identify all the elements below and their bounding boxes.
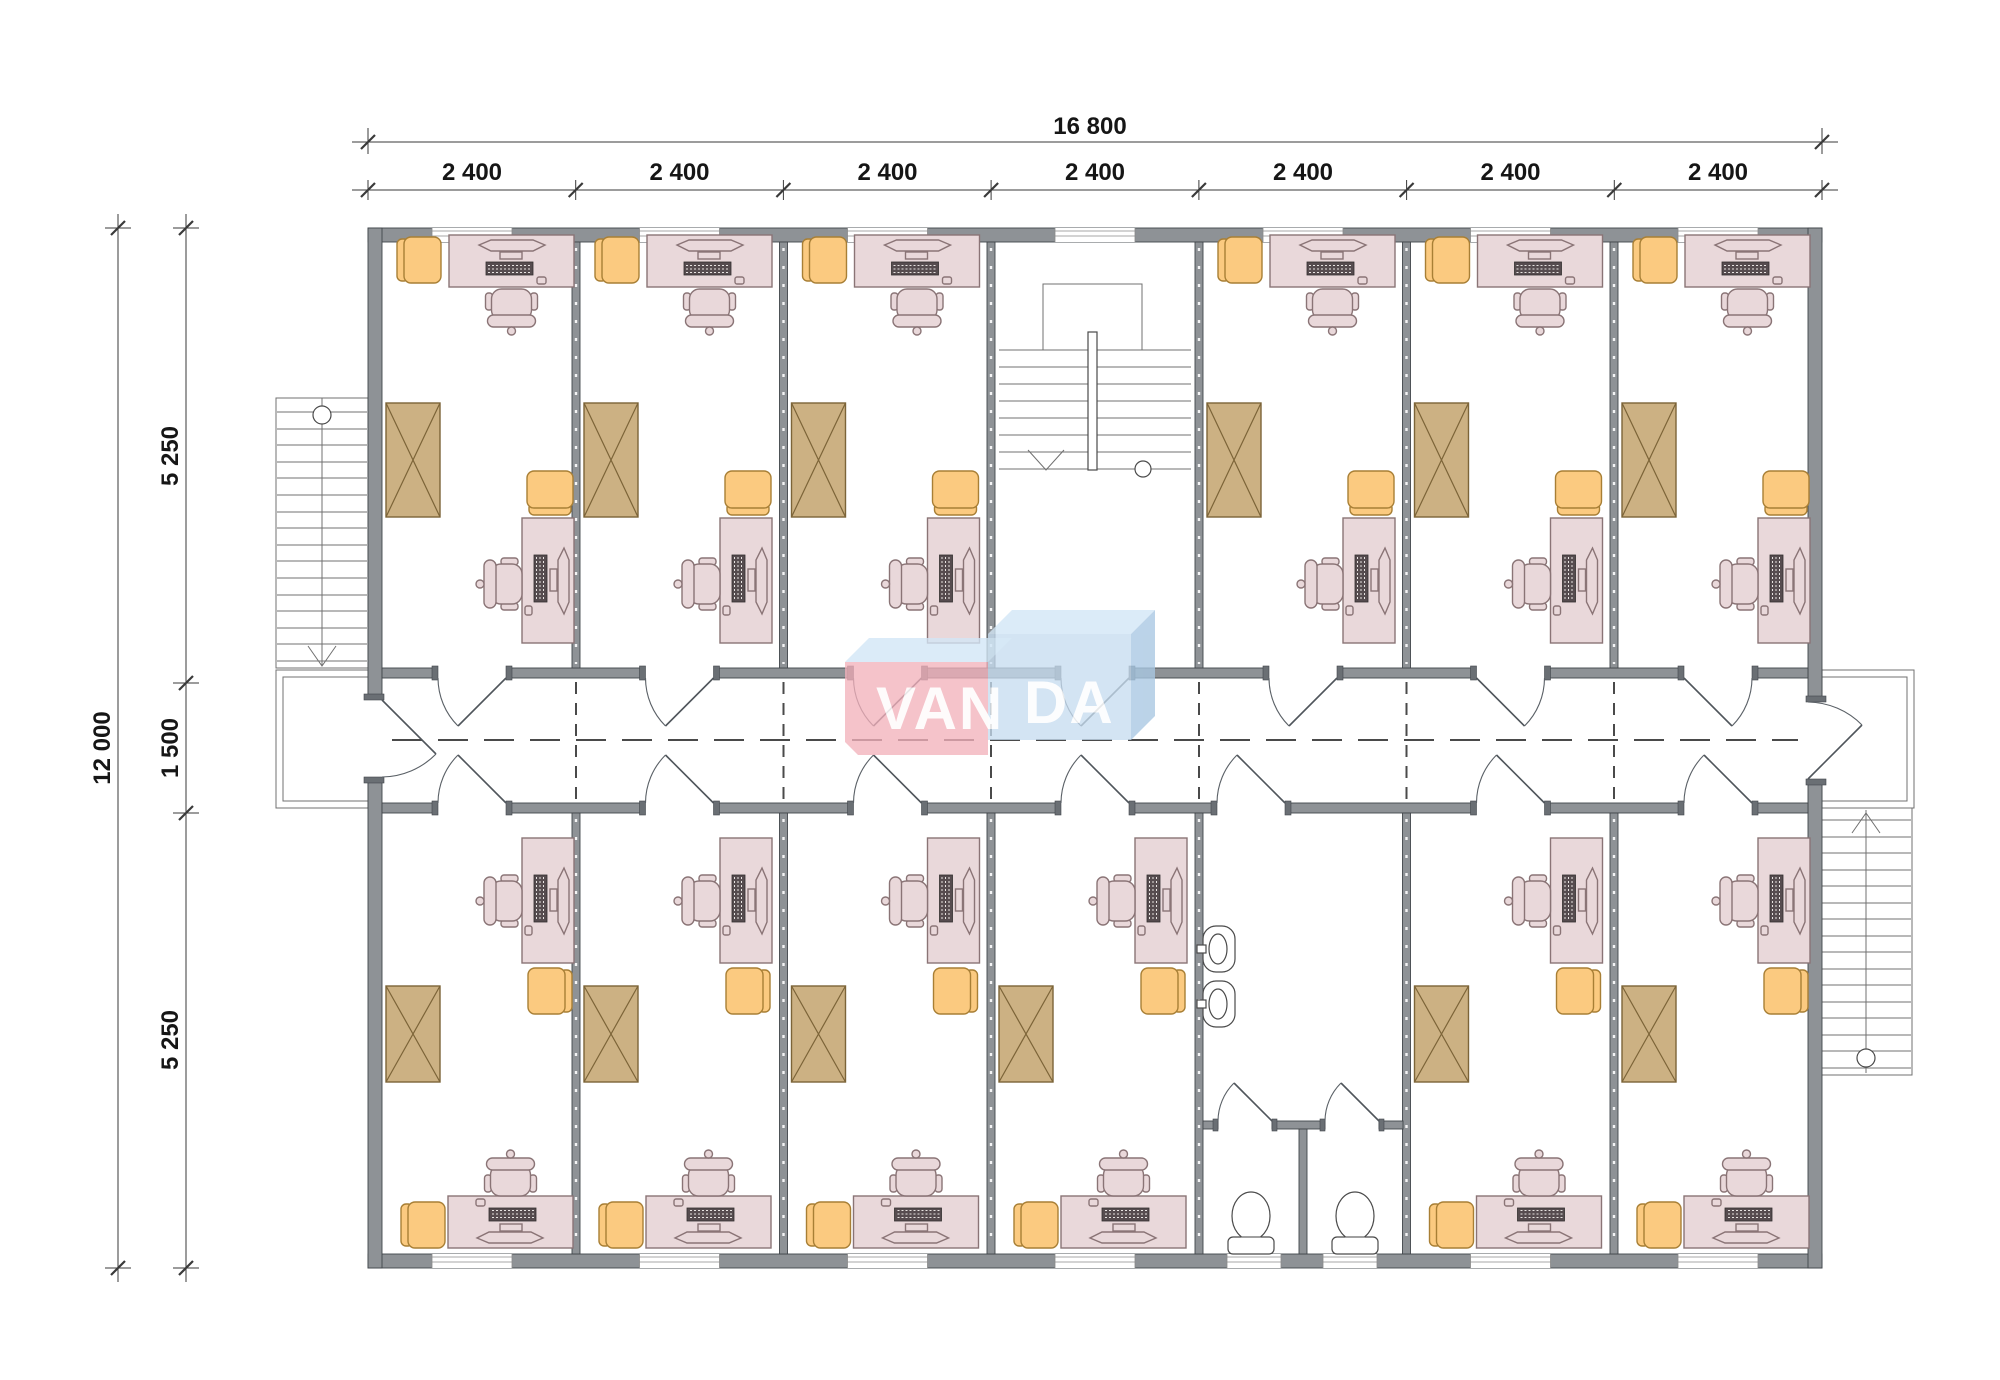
office-room-bottom-6 bbox=[1622, 838, 1810, 1248]
office-room-top-2 bbox=[584, 235, 772, 643]
door-bathroom bbox=[1211, 755, 1291, 815]
dim-total-width: 16 800 bbox=[1053, 113, 1126, 140]
stair-start-marker bbox=[1857, 1049, 1875, 1067]
office-room-bottom-4 bbox=[999, 838, 1187, 1248]
exterior-stair-left bbox=[276, 398, 368, 808]
door-wc-stall-2 bbox=[1320, 1083, 1384, 1131]
stair-start-marker bbox=[313, 406, 331, 424]
exit-landing bbox=[1822, 670, 1914, 808]
dim-bay-2: 2 400 bbox=[649, 159, 709, 186]
door-entrance-right bbox=[1806, 696, 1862, 785]
dim-bay-1: 2 400 bbox=[442, 159, 502, 186]
office-rooms bbox=[386, 235, 1810, 1248]
office-room-bottom-3 bbox=[792, 838, 980, 1248]
door-office-top-4 bbox=[1263, 666, 1343, 726]
wall-partition bbox=[1403, 813, 1411, 1254]
door-office-bottom-6 bbox=[1678, 755, 1758, 815]
door-office-top-5 bbox=[1471, 666, 1551, 726]
wall-partition bbox=[1403, 242, 1411, 668]
wall-partition bbox=[1195, 813, 1203, 1254]
wall-partition bbox=[1610, 813, 1618, 1254]
wall-partition bbox=[1195, 242, 1203, 668]
central-stairwell bbox=[999, 284, 1191, 477]
dim-bay-6: 2 400 bbox=[1480, 159, 1540, 186]
logo-text-van: VAN bbox=[876, 675, 1004, 742]
logo-blue-top-face bbox=[988, 610, 1155, 634]
door-office-bottom-2 bbox=[640, 755, 720, 815]
wall-partition bbox=[987, 242, 995, 668]
stair-start-marker bbox=[1135, 461, 1151, 477]
wall-partition bbox=[780, 813, 788, 1254]
dimension-left: 12 000 5 250 1 500 5 250 bbox=[89, 214, 199, 1282]
dim-corridor: 1 500 bbox=[157, 718, 184, 778]
dim-total-height: 12 000 bbox=[89, 711, 116, 784]
office-room-bottom-5 bbox=[1415, 838, 1603, 1248]
stair-down-arrow-icon bbox=[1028, 450, 1064, 470]
dim-bay-3: 2 400 bbox=[857, 159, 917, 186]
logo-watermark: VAN DA bbox=[845, 610, 1155, 755]
door-office-bottom-1 bbox=[432, 755, 512, 815]
door-office-bottom-5 bbox=[1471, 755, 1551, 815]
logo-text-da: DA bbox=[1024, 669, 1115, 736]
wall-partition bbox=[1610, 242, 1618, 668]
office-room-bottom-2 bbox=[584, 838, 772, 1248]
entry-landing bbox=[276, 670, 368, 808]
dim-bay-5: 2 400 bbox=[1273, 159, 1333, 186]
door-office-top-2 bbox=[640, 666, 720, 726]
door-wc-stall-1 bbox=[1213, 1083, 1277, 1131]
exterior-stair-right bbox=[1820, 670, 1914, 1075]
dim-bay-4: 2 400 bbox=[1065, 159, 1125, 186]
door-office-bottom-3 bbox=[848, 755, 928, 815]
dimension-top: 16 800 2 400 2 400 2 400 2 400 2 400 2 4… bbox=[352, 113, 1838, 200]
office-room-top-6 bbox=[1622, 235, 1810, 643]
office-room-top-4 bbox=[1207, 235, 1395, 643]
office-room-top-3 bbox=[792, 235, 980, 643]
dim-row-bottom: 5 250 bbox=[157, 1010, 184, 1070]
door-office-top-6 bbox=[1678, 666, 1758, 726]
bathroom bbox=[1197, 926, 1378, 1254]
door-entrance-left bbox=[364, 694, 436, 783]
wall-partition bbox=[780, 242, 788, 668]
dim-bay-7: 2 400 bbox=[1688, 159, 1748, 186]
toilet-icon bbox=[1228, 1192, 1274, 1254]
floor-plan-page: 16 800 2 400 2 400 2 400 2 400 2 400 2 4… bbox=[0, 0, 2000, 1380]
logo-pink-top-face bbox=[845, 638, 1012, 662]
floor-plan-drawing: 16 800 2 400 2 400 2 400 2 400 2 400 2 4… bbox=[0, 0, 2000, 1380]
toilet-icon bbox=[1332, 1192, 1378, 1254]
wall-bathroom bbox=[1272, 1121, 1325, 1129]
office-room-top-5 bbox=[1415, 235, 1603, 643]
office-room-top-1 bbox=[386, 235, 574, 643]
dim-row-top: 5 250 bbox=[157, 426, 184, 486]
office-room-bottom-1 bbox=[386, 838, 574, 1248]
wall-partition bbox=[987, 813, 995, 1254]
wall-stall-divider bbox=[1299, 1129, 1307, 1254]
door-office-bottom-4 bbox=[1055, 755, 1135, 815]
door-office-top-1 bbox=[432, 666, 512, 726]
